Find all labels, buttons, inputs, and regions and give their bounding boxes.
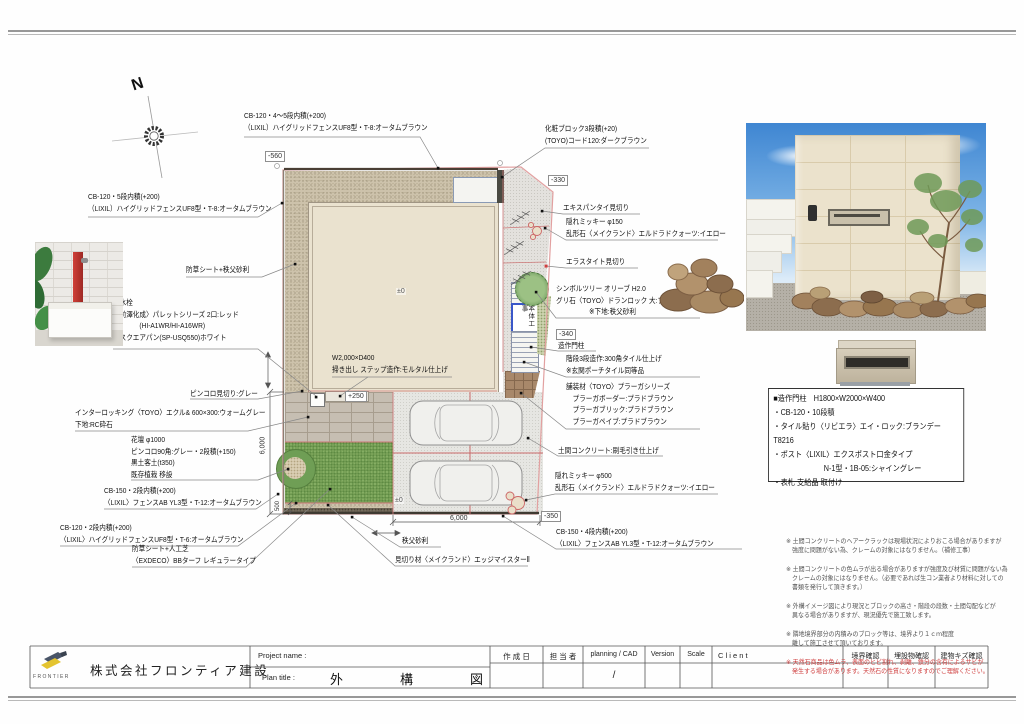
photo-postbox xyxy=(826,338,926,388)
dim-bottom-6000: 6,000 xyxy=(450,515,468,522)
tb-col-boundary: 境界確認 xyxy=(843,651,888,661)
callout-cb150-2: CB-150・2段内積(+200) 〈LIXIL〉フェンスAB YL3型・T-1… xyxy=(104,485,262,508)
faucet xyxy=(81,258,88,263)
callout-artificial-turf: 防草シート+人工芝 〈EXDECO〉BBターフ レギュラータイプ xyxy=(132,543,256,566)
callout-standpipe: 立水栓 〈前澤化成〉パレットシリーズ 2口:レッド (HI-A1WR/HI-A1… xyxy=(113,297,239,343)
callout-flower-bed: 花壇 φ1000 ピンコロ90角:グレー・2段積(+150) 黒土客土(t350… xyxy=(131,434,236,480)
callout-expantay: エキスパンタイ見切り xyxy=(563,202,629,214)
plan-title-label: Plan title : xyxy=(262,673,295,682)
dim-left-6000: 6,000 xyxy=(260,431,267,461)
callout-step-work: W2,000×D400 掃き出し ステップ造作:モルタル仕上げ xyxy=(332,352,448,375)
photo-standpipe xyxy=(35,242,123,346)
tb-col-scale: Scale xyxy=(680,651,712,658)
note-item: ※ 土間コンクリートの色ムラが出る場合がありますが強度及び材質に問題がない為 ク… xyxy=(786,565,1024,592)
callout-mickey-500: 隠れミッキー φ500 乱形石〈メイクランド〉エルドラドクォーツ:イエロー xyxy=(555,470,715,493)
tb-col-person: 担 当 者 xyxy=(543,651,583,662)
decor-block-wall xyxy=(497,170,504,203)
entrance-steps-lower xyxy=(511,331,539,373)
callout-cb120-2: CB-120・2段内積(+200) 〈LIXIL〉ハイグリッドフェンスUF8型・… xyxy=(60,522,244,545)
frontier-logo-icon xyxy=(36,650,70,672)
callout-decor-block: 化粧ブロック3段積(+20) (TOYO)コード120:ダークブラウン xyxy=(545,123,647,146)
olive-tree-symbol xyxy=(515,272,549,306)
gravel-band-left xyxy=(285,171,308,392)
callout-stairs: 階段3段造作:300角タイル仕上げ ※玄関ポーチタイル同等品 xyxy=(566,353,662,376)
elev-marker-350: -350 xyxy=(541,511,561,522)
photo-gate-wall xyxy=(746,123,986,331)
postbox-base xyxy=(840,382,910,386)
guri-stone-bed xyxy=(537,296,551,356)
compass-north-label: N xyxy=(130,75,147,96)
drawing-sheet: 本体工事 xyxy=(0,0,1024,724)
parking-level-label: ±0 xyxy=(394,497,404,504)
callout-paving: 舗装材〈TOYO〉プラーガシリーズ プラーガボーダー:プラドブラウン プラーガブ… xyxy=(566,381,673,427)
tb-col-date: 作 成 日 xyxy=(490,651,543,662)
elev-marker-340: -340 xyxy=(556,329,576,340)
tb-planning-value: / xyxy=(583,670,645,681)
frontier-logo-text: FRONTIER xyxy=(33,674,70,680)
callout-doma-concrete: 土間コンクリート:刷毛引き仕上げ xyxy=(558,445,659,457)
callout-cb120-4-5: CB-120・4～5段内積(+200) （LIXIL）ハイグリッドフェンスUF8… xyxy=(244,110,428,133)
callout-interlocking: インターロッキング〈TOYO〉エクル& 600×300:ウォームグレー 下地:R… xyxy=(75,407,266,430)
tb-col-version: Version xyxy=(645,651,680,658)
callout-cb120-5: CB-120・5段内積(+200) （LIXIL）ハイグリッドフェンスUF8型・… xyxy=(88,191,272,214)
callout-edge-material: 見切り材〈メイクランド〉エッジマイスターⅡ xyxy=(395,554,530,566)
standpipe-plan-box xyxy=(310,393,325,407)
company-name: 株式会社フロンティア建設 xyxy=(90,660,269,679)
flower-bed-soil xyxy=(284,457,306,479)
tb-col-scratch: 建物キズ確認 xyxy=(935,651,988,661)
notes-block: ※ 土間コンクリートのヘアークラックは現場状況によりおこる場合がありますが 強度… xyxy=(786,528,1024,686)
water-basin xyxy=(48,302,112,338)
tb-col-planning: planning / CAD xyxy=(583,651,645,658)
parking-concrete-area xyxy=(393,392,543,514)
note-item: ※ 隣地境界部分の内積みのブロック等は、境界より１ｃｍ程度 離して施工させて頂い… xyxy=(786,630,1024,648)
callout-gate-post: 造作門柱 xyxy=(558,340,584,352)
note-item: ※ 土間コンクリートのヘアークラックは現場状況によりおこる場合がありますが 強度… xyxy=(786,537,1024,555)
project-name-label: Project name : xyxy=(258,651,306,660)
tb-col-buried: 埋設物確認 xyxy=(888,651,935,661)
plan-title-value: 外 構 図 xyxy=(330,669,505,688)
house-level-label: ±0 xyxy=(396,288,406,295)
photo-rock-pile xyxy=(648,248,744,314)
note-item: ※ 外構イメージ図により現況とブロックの高さ・階段の段数・土間勾配などが 異なる… xyxy=(786,602,1024,620)
dim-strip-500: 500 xyxy=(275,496,281,516)
postbox-slot xyxy=(844,356,910,369)
callout-elastite: エラスタイト見切り xyxy=(566,256,625,268)
callout-chichibu-gravel: 秩父砂利 xyxy=(402,535,428,547)
callout-pinkoro-edge: ピンコロ見切り:グレー xyxy=(190,388,258,400)
callout-mickey-150: 隠れミッキー φ150 乱形石〈メイクランド〉エルドラドクォーツ:イエロー xyxy=(566,216,726,239)
callout-cb150-4: CB-150・4段内積(+200) 〈LIXIL〉フェンスAB YL3型・T-1… xyxy=(556,526,714,549)
tree-and-rocks-graphic xyxy=(746,123,986,331)
elev-marker-330: -330 xyxy=(548,175,568,186)
porch-area xyxy=(453,177,500,203)
elev-marker-250: +250 xyxy=(345,391,367,402)
tb-col-client: C l i e n t xyxy=(718,651,748,660)
elev-marker-560: -560 xyxy=(265,151,285,162)
gate-post-spec-box: ■造作門柱 H1800×W2000×W400 ・CB-120・10段積 ・タイル… xyxy=(768,388,964,482)
callout-weed-sheet-gravel: 防草シート+秩父砂利 xyxy=(186,264,249,276)
